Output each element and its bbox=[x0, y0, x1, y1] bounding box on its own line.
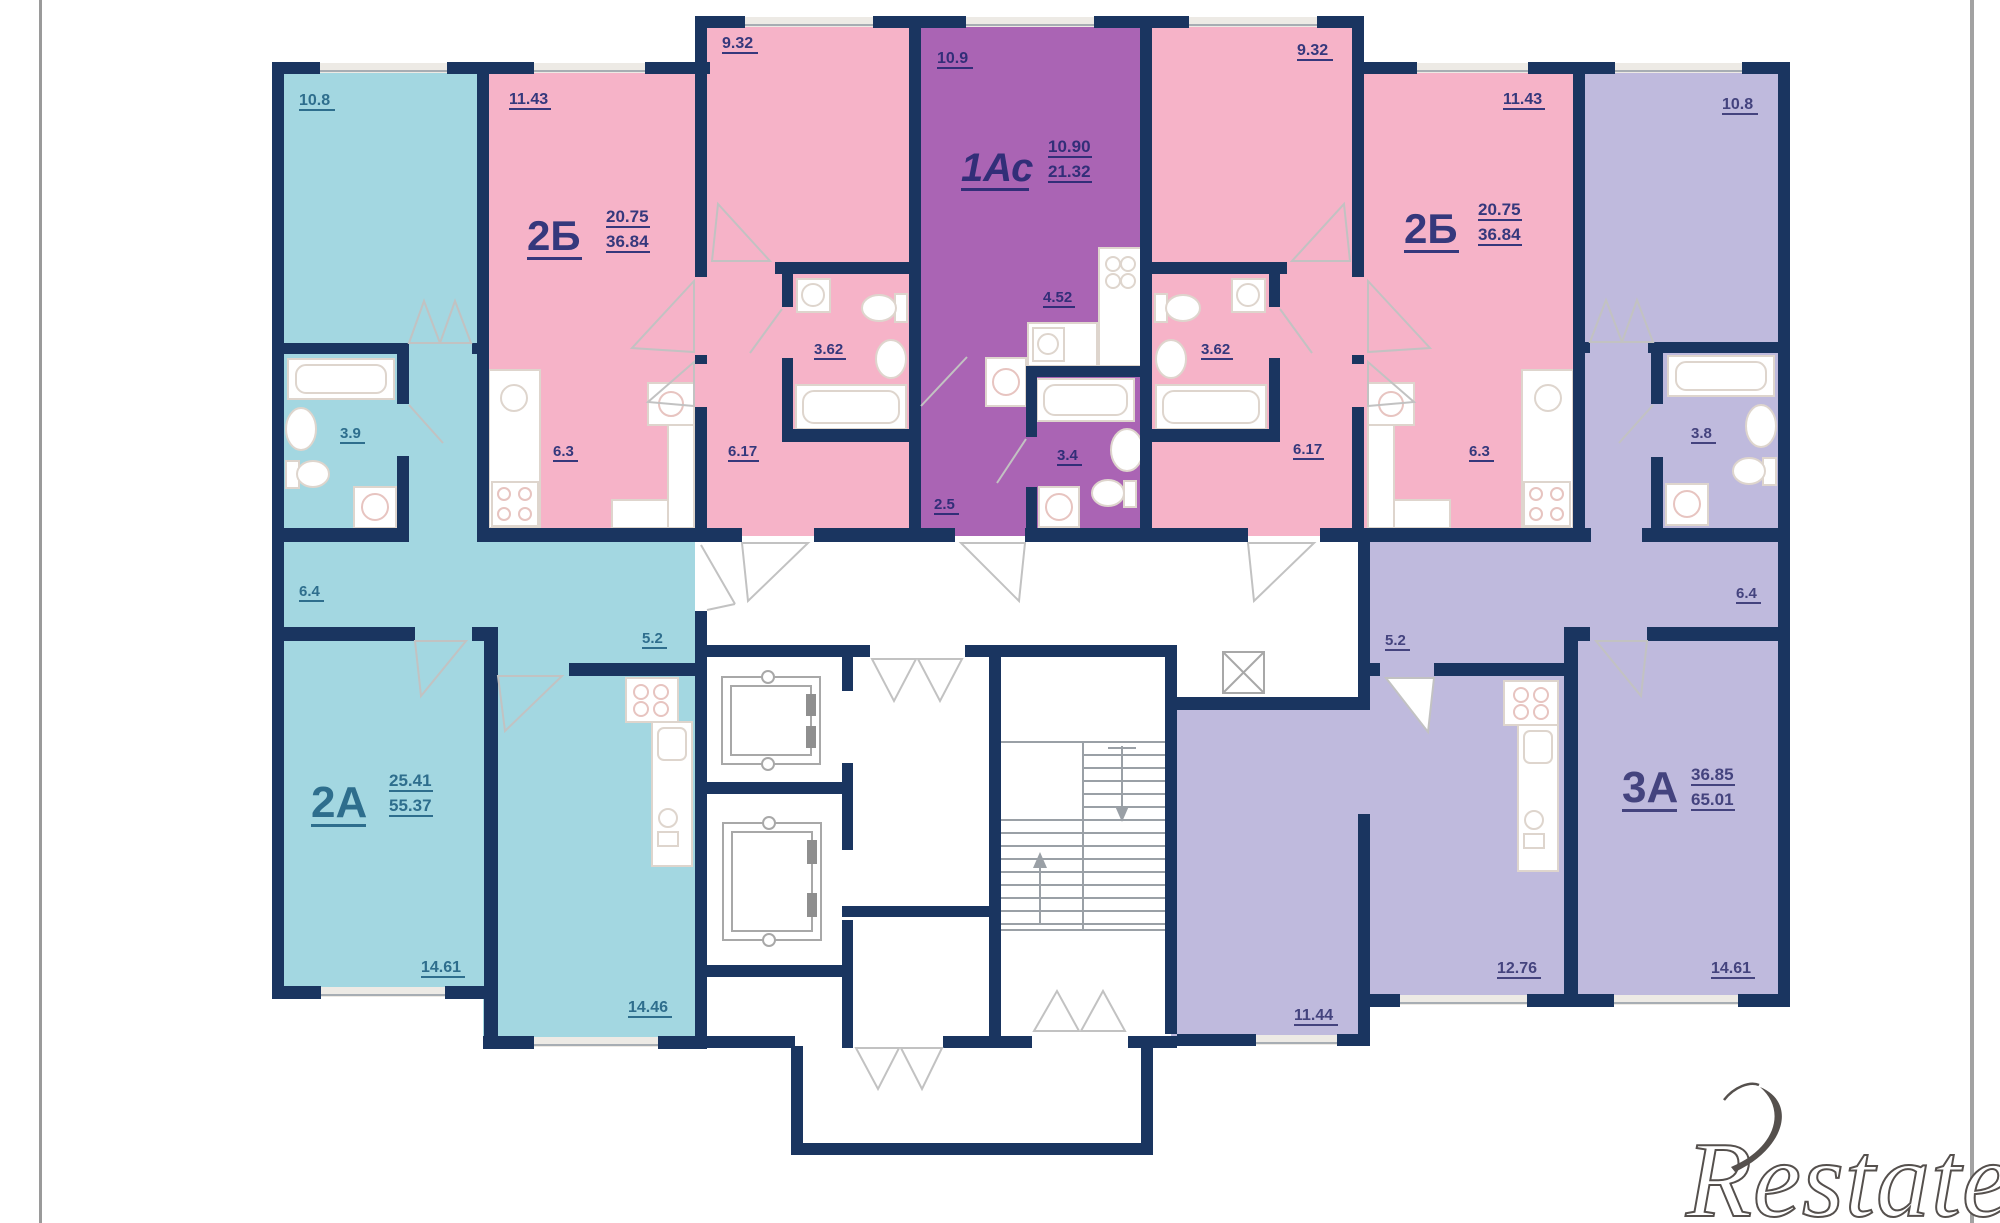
svg-text:3.62: 3.62 bbox=[814, 341, 843, 358]
svg-text:14.61: 14.61 bbox=[1711, 960, 1751, 977]
svg-text:3.62: 3.62 bbox=[1201, 341, 1230, 358]
svg-text:6.4: 6.4 bbox=[1736, 585, 1758, 602]
svg-text:6.3: 6.3 bbox=[553, 443, 574, 460]
svg-text:14.61: 14.61 bbox=[421, 959, 461, 976]
svg-text:21.32: 21.32 bbox=[1048, 162, 1091, 181]
svg-text:2А: 2А bbox=[311, 778, 367, 827]
svg-text:10.8: 10.8 bbox=[299, 92, 330, 109]
svg-text:1Ас: 1Ас bbox=[961, 146, 1033, 190]
svg-text:12.76: 12.76 bbox=[1497, 960, 1537, 977]
svg-text:Restate: Restate bbox=[1685, 1121, 2000, 1223]
svg-text:14.46: 14.46 bbox=[628, 999, 668, 1016]
svg-text:10.9: 10.9 bbox=[937, 50, 968, 67]
svg-text:2Б: 2Б bbox=[527, 212, 581, 259]
svg-text:5.2: 5.2 bbox=[642, 630, 663, 647]
svg-text:11.43: 11.43 bbox=[1503, 91, 1542, 108]
svg-text:55.37: 55.37 bbox=[389, 796, 432, 815]
svg-text:20.75: 20.75 bbox=[606, 207, 649, 226]
svg-text:3А: 3А bbox=[1622, 763, 1678, 812]
svg-text:25.41: 25.41 bbox=[389, 771, 432, 790]
svg-text:10.90: 10.90 bbox=[1048, 137, 1091, 156]
svg-text:9.32: 9.32 bbox=[722, 35, 753, 52]
svg-text:3.8: 3.8 bbox=[1691, 425, 1712, 442]
svg-text:2Б: 2Б bbox=[1404, 205, 1458, 252]
svg-text:36.85: 36.85 bbox=[1691, 765, 1734, 784]
svg-text:5.2: 5.2 bbox=[1385, 632, 1406, 649]
svg-text:4.52: 4.52 bbox=[1043, 289, 1072, 306]
svg-text:11.44: 11.44 bbox=[1294, 1007, 1333, 1024]
svg-text:6.3: 6.3 bbox=[1469, 443, 1490, 460]
svg-text:9.32: 9.32 bbox=[1297, 42, 1328, 59]
svg-text:36.84: 36.84 bbox=[1478, 225, 1521, 244]
svg-text:36.84: 36.84 bbox=[606, 232, 649, 251]
svg-text:6.4: 6.4 bbox=[299, 583, 321, 600]
svg-text:3.4: 3.4 bbox=[1057, 447, 1079, 464]
svg-text:6.17: 6.17 bbox=[728, 443, 757, 460]
svg-text:10.8: 10.8 bbox=[1722, 96, 1753, 113]
svg-text:6.17: 6.17 bbox=[1293, 441, 1322, 458]
svg-text:20.75: 20.75 bbox=[1478, 200, 1521, 219]
svg-text:65.01: 65.01 bbox=[1691, 790, 1734, 809]
svg-text:2.5: 2.5 bbox=[934, 496, 955, 513]
svg-text:11.43: 11.43 bbox=[509, 91, 548, 108]
svg-text:3.9: 3.9 bbox=[340, 425, 361, 442]
